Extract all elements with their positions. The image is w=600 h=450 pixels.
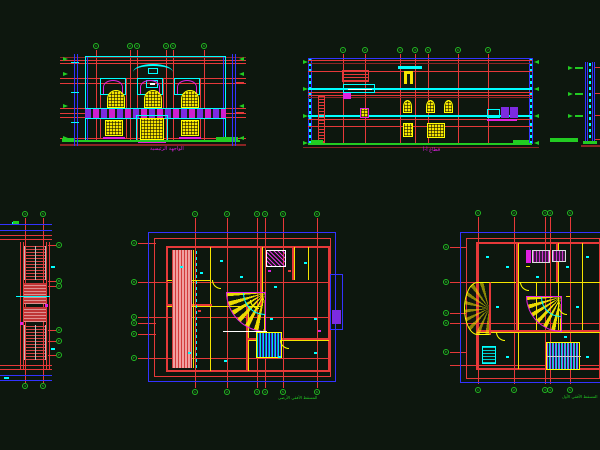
ye xyxy=(526,266,530,267)
gr xyxy=(513,140,529,144)
grid-bubble[interactable]: B xyxy=(443,279,449,285)
arched-window xyxy=(403,100,412,113)
line-horizontal xyxy=(460,232,600,233)
bathroom-hatch xyxy=(532,250,550,263)
grid-bubble[interactable]: F xyxy=(131,355,137,361)
line-vertical xyxy=(223,56,224,142)
gr xyxy=(575,67,583,69)
grid-bubble[interactable]: D xyxy=(443,320,449,326)
pu xyxy=(501,107,509,118)
line-horizontal xyxy=(0,380,52,381)
cy xyxy=(16,296,50,297)
grid-bubble[interactable]: 2 xyxy=(224,211,230,217)
ye xyxy=(308,247,309,280)
level-mark xyxy=(568,114,573,118)
grid-bubble[interactable]: 5 xyxy=(567,210,573,216)
grid-bubble[interactable]: 4 xyxy=(262,211,268,217)
line-vertical xyxy=(225,56,226,142)
line-horizontal xyxy=(0,235,52,236)
pu xyxy=(510,107,518,118)
line-horizontal xyxy=(308,97,532,98)
decor xyxy=(35,246,36,280)
parapet-ornament-center xyxy=(148,68,158,74)
line-horizontal xyxy=(308,95,532,96)
section-title: قطاع أ-أ xyxy=(423,147,440,153)
grid-bubble[interactable]: A xyxy=(56,242,62,248)
lower-window-left xyxy=(105,120,123,136)
line-vertical xyxy=(488,54,489,143)
tick-mark xyxy=(71,92,79,93)
grid-bubble[interactable]: 3 xyxy=(134,43,140,49)
mg xyxy=(343,93,351,99)
grid-bubble[interactable]: 5 xyxy=(40,383,46,389)
grid-bubble[interactable]: D xyxy=(56,327,62,333)
line-vertical xyxy=(74,54,75,146)
line-horizontal xyxy=(236,112,244,113)
wall-hatch-block xyxy=(24,307,46,322)
level-mark xyxy=(239,136,244,140)
ye xyxy=(582,243,583,332)
tick-mark xyxy=(240,276,243,278)
grid-bubble[interactable]: 2 xyxy=(362,47,368,53)
mg xyxy=(526,250,531,263)
line-horizontal xyxy=(198,310,201,312)
rhatch xyxy=(318,96,325,143)
mg xyxy=(318,330,321,332)
grid-bubble[interactable]: 7 xyxy=(485,47,491,53)
grid-bubble[interactable]: 3 xyxy=(397,47,403,53)
ye xyxy=(193,250,194,368)
line-vertical xyxy=(85,56,86,142)
grid-bubble[interactable]: 2 xyxy=(511,210,517,216)
line-horizontal xyxy=(303,147,539,148)
tick-mark xyxy=(51,348,55,350)
bathroom-hatch xyxy=(552,250,566,262)
grid-bubble[interactable]: 2 xyxy=(127,43,133,49)
tick-mark xyxy=(224,360,227,362)
tick-mark xyxy=(304,262,307,264)
grid-bubble[interactable]: 4 xyxy=(22,211,28,217)
line-vertical xyxy=(77,54,78,146)
grid-bubble[interactable]: 6 xyxy=(314,389,320,395)
grid-bubble[interactable]: 2 xyxy=(224,389,230,395)
line-horizontal xyxy=(460,382,600,383)
line-horizontal xyxy=(85,56,226,57)
level-mark xyxy=(534,141,539,145)
lower-window-right xyxy=(181,120,199,136)
tick-mark xyxy=(270,318,273,320)
level-mark xyxy=(239,104,244,108)
ground-floor-plan-title: المسقط الأفقي الأرضي xyxy=(278,395,317,401)
gr xyxy=(583,141,597,144)
tick-mark xyxy=(220,260,223,262)
partial-plan-left[interactable]: 4545ABCDEF xyxy=(0,208,66,394)
level-mark xyxy=(63,136,68,140)
grid-bubble[interactable]: B xyxy=(131,279,137,285)
tick-mark xyxy=(506,356,509,358)
curved-bay xyxy=(464,282,491,335)
tick-mark xyxy=(188,352,191,354)
level-mark xyxy=(534,114,539,118)
stair-flight xyxy=(256,332,282,358)
line-horizontal xyxy=(581,145,600,147)
tick-mark xyxy=(314,318,317,320)
tick-mark xyxy=(566,266,569,268)
cad-canvas[interactable]: الواجهة الرئيسية 123456 xyxy=(0,0,600,450)
front-elevation-title: الواجهة الرئيسية xyxy=(150,146,184,152)
closet-hatch xyxy=(266,250,286,267)
line-horizontal xyxy=(450,247,466,248)
lower-window-wide xyxy=(427,123,445,138)
grid-bubble[interactable]: 6 xyxy=(455,47,461,53)
grid-bubble[interactable]: 4 xyxy=(163,43,169,49)
level-mark xyxy=(63,57,68,61)
level-mark xyxy=(303,114,308,118)
line-horizontal xyxy=(595,67,600,68)
line-horizontal xyxy=(595,93,600,94)
tick-mark xyxy=(314,352,317,354)
stair-flight-upper xyxy=(24,246,46,280)
grid-bubble[interactable]: E xyxy=(131,331,137,337)
mg xyxy=(268,270,271,272)
grid-bubble[interactable]: 5 xyxy=(567,387,573,393)
line-horizontal xyxy=(308,60,532,61)
line-vertical xyxy=(458,54,459,143)
gr xyxy=(308,143,532,145)
line-vertical xyxy=(532,58,533,144)
grid-bubble[interactable]: E xyxy=(443,349,449,355)
tick-mark xyxy=(586,256,589,258)
gr xyxy=(13,221,19,224)
first-floor-plan-drawing[interactable]: المسقط الأفقي الأول 1234512345ABCDE xyxy=(436,206,600,406)
tick-mark xyxy=(496,306,499,308)
line-horizontal xyxy=(236,82,244,83)
parapet-hatch xyxy=(342,70,369,82)
grid-bubble[interactable]: E xyxy=(56,338,62,344)
line-horizontal xyxy=(308,63,532,64)
dashed-line xyxy=(196,250,197,368)
tick-mark xyxy=(71,122,79,123)
line-vertical xyxy=(587,62,588,144)
grid-bubble[interactable]: 1 xyxy=(93,43,99,49)
grid-bubble[interactable]: 4 xyxy=(262,389,268,395)
stair-flight xyxy=(546,342,580,370)
grid-bubble[interactable]: C xyxy=(56,283,62,289)
ye xyxy=(294,247,295,280)
mg xyxy=(487,119,517,121)
gr xyxy=(575,93,583,95)
line-vertical xyxy=(87,56,88,142)
grid-bubble[interactable]: 1 xyxy=(192,389,198,395)
roof-door xyxy=(404,71,413,84)
grid-bubble[interactable]: 3 xyxy=(254,211,260,217)
line-vertical xyxy=(460,232,461,382)
tick-mark xyxy=(274,286,277,288)
mg xyxy=(103,137,125,139)
tick-mark xyxy=(4,377,9,379)
level-mark xyxy=(303,87,308,91)
line-horizontal xyxy=(0,365,52,366)
lower-window xyxy=(403,123,413,137)
gr xyxy=(575,115,583,117)
decor xyxy=(35,325,36,360)
line-horizontal xyxy=(0,375,52,376)
ground-floor-plan-drawing[interactable]: المسقط الأفقي الأرضي 123456123456ABCDEF xyxy=(128,210,346,407)
tick-mark xyxy=(486,256,489,258)
level-mark xyxy=(303,60,308,64)
line-horizontal xyxy=(595,139,600,140)
stair-flight-lower xyxy=(24,325,46,360)
gr xyxy=(68,140,240,142)
cy xyxy=(398,66,422,69)
grid-bubble[interactable]: 4 xyxy=(547,210,553,216)
ye xyxy=(210,247,211,371)
arched-window xyxy=(426,100,435,113)
partial-elevation-strip[interactable] xyxy=(545,55,600,151)
dashed-line xyxy=(589,62,591,144)
gr xyxy=(311,140,323,144)
arched-window-1 xyxy=(107,90,125,108)
wall-hatch-block xyxy=(24,283,46,304)
level-mark xyxy=(63,104,68,108)
tick-mark xyxy=(576,306,579,308)
line-vertical xyxy=(49,242,50,370)
first-floor-plan-title: المسقط الأفقي الأول xyxy=(562,394,597,400)
grid-bubble[interactable]: 5 xyxy=(425,47,431,53)
beam xyxy=(343,84,375,93)
line-vertical xyxy=(292,247,294,280)
gr xyxy=(550,138,578,142)
shelf-hatch xyxy=(482,346,496,364)
tick-mark xyxy=(200,272,203,274)
level-mark xyxy=(63,72,68,76)
tick-mark xyxy=(506,266,509,268)
decor xyxy=(547,356,581,357)
grid-bubble[interactable]: 5 xyxy=(280,211,286,217)
entrance-door xyxy=(140,118,164,140)
grid-bubble[interactable]: A xyxy=(131,240,137,246)
mg xyxy=(179,137,201,139)
line-horizontal xyxy=(0,239,52,240)
grid-bubble[interactable]: 4 xyxy=(412,47,418,53)
level-mark xyxy=(534,60,539,64)
arched-window-3 xyxy=(181,90,199,108)
grid-bubble[interactable]: 5 xyxy=(40,211,46,217)
tick-mark xyxy=(536,276,539,278)
line-horizontal xyxy=(288,270,291,272)
line-vertical xyxy=(592,62,593,144)
grid-bubble[interactable]: 2 xyxy=(511,387,517,393)
wh xyxy=(348,89,372,90)
line-vertical xyxy=(232,54,233,146)
level-mark xyxy=(534,87,539,91)
ye xyxy=(518,243,519,369)
level-mark xyxy=(239,57,244,61)
grid-bubble[interactable]: 1 xyxy=(475,387,481,393)
tick-mark xyxy=(586,356,589,358)
level-mark xyxy=(239,72,244,76)
pu xyxy=(332,310,341,324)
section-drawing[interactable]: قطاع أ-أ 1234567 xyxy=(303,46,539,160)
line-horizontal xyxy=(308,126,532,127)
level-mark xyxy=(303,141,308,145)
line-horizontal xyxy=(308,58,532,59)
small-window xyxy=(360,108,369,118)
tick-mark xyxy=(51,266,55,268)
tick-mark xyxy=(278,356,281,358)
line-vertical xyxy=(516,243,518,332)
arched-window-2 xyxy=(144,90,162,108)
line-vertical xyxy=(585,62,586,144)
grid-bubble[interactable]: 1 xyxy=(475,210,481,216)
grid-bubble[interactable]: 4 xyxy=(547,387,553,393)
grid-bubble[interactable]: 6 xyxy=(314,211,320,217)
line-vertical xyxy=(365,54,366,143)
grid-bubble[interactable]: 1 xyxy=(340,47,346,53)
grid-bubble[interactable]: 5 xyxy=(280,389,286,395)
line-horizontal xyxy=(308,92,532,93)
grid-bubble[interactable]: D xyxy=(131,320,137,326)
grid-bubble[interactable]: 3 xyxy=(254,389,260,395)
grid-bubble[interactable]: 6 xyxy=(201,43,207,49)
line-horizontal xyxy=(0,369,52,370)
grid-bubble[interactable]: 1 xyxy=(192,211,198,217)
level-mark xyxy=(568,66,573,70)
line-horizontal xyxy=(308,88,532,90)
ye xyxy=(566,296,570,297)
line-horizontal xyxy=(0,224,52,225)
grid-bubble[interactable]: A xyxy=(443,244,449,250)
line-horizontal xyxy=(595,115,600,116)
decor xyxy=(407,74,410,84)
tick-mark xyxy=(71,62,79,63)
line-horizontal xyxy=(0,230,52,231)
grid-bubble[interactable]: 4 xyxy=(22,383,28,389)
line-horizontal xyxy=(450,352,466,353)
tick-mark xyxy=(564,336,567,338)
grid-bubble[interactable]: 5 xyxy=(170,43,176,49)
mg xyxy=(45,304,48,307)
grid-bubble[interactable]: F xyxy=(56,352,62,358)
line-vertical xyxy=(594,62,595,144)
grid-bubble[interactable]: C xyxy=(443,310,449,316)
mg xyxy=(20,322,23,325)
front-elevation-drawing[interactable]: الواجهة الرئيسية 123456 xyxy=(60,42,246,158)
arched-window xyxy=(444,100,453,113)
level-mark xyxy=(568,92,573,96)
tick-mark xyxy=(180,266,183,268)
line-vertical xyxy=(235,54,236,146)
line-vertical xyxy=(556,243,558,282)
line-vertical xyxy=(20,242,21,370)
cybox xyxy=(487,109,500,118)
